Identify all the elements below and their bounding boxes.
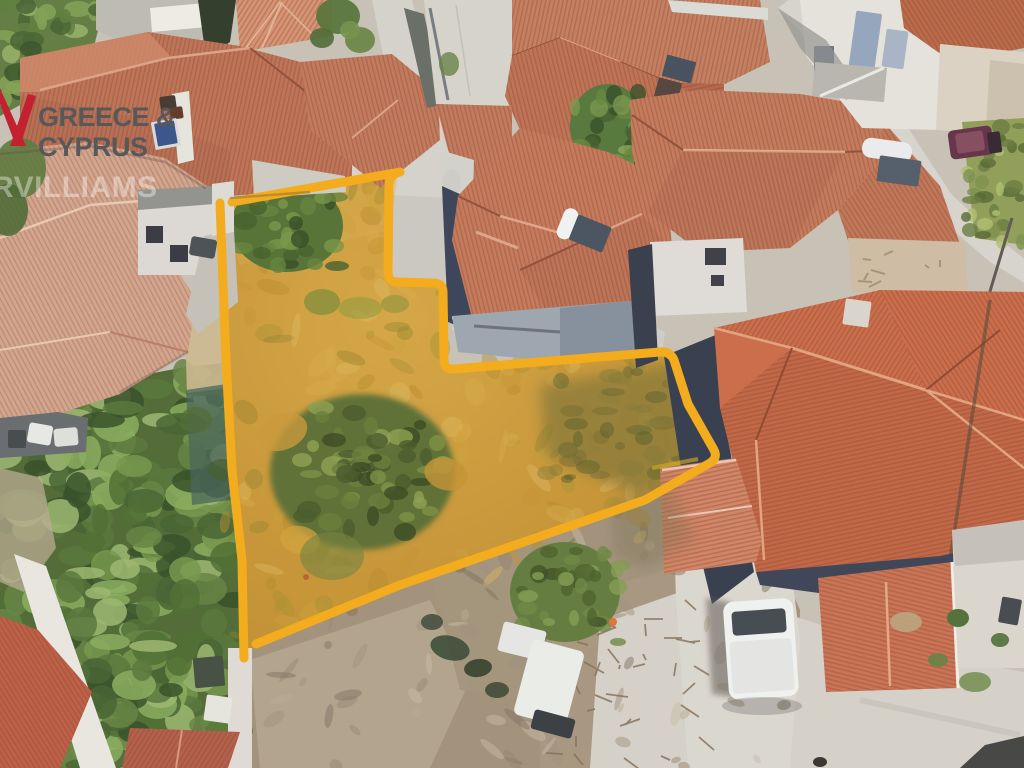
svg-text:RVILLIAMS: RVILLIAMS (0, 171, 158, 204)
svg-text:GREECE &: GREECE & (38, 102, 175, 132)
svg-text:CYPRUS: CYPRUS (38, 132, 148, 162)
